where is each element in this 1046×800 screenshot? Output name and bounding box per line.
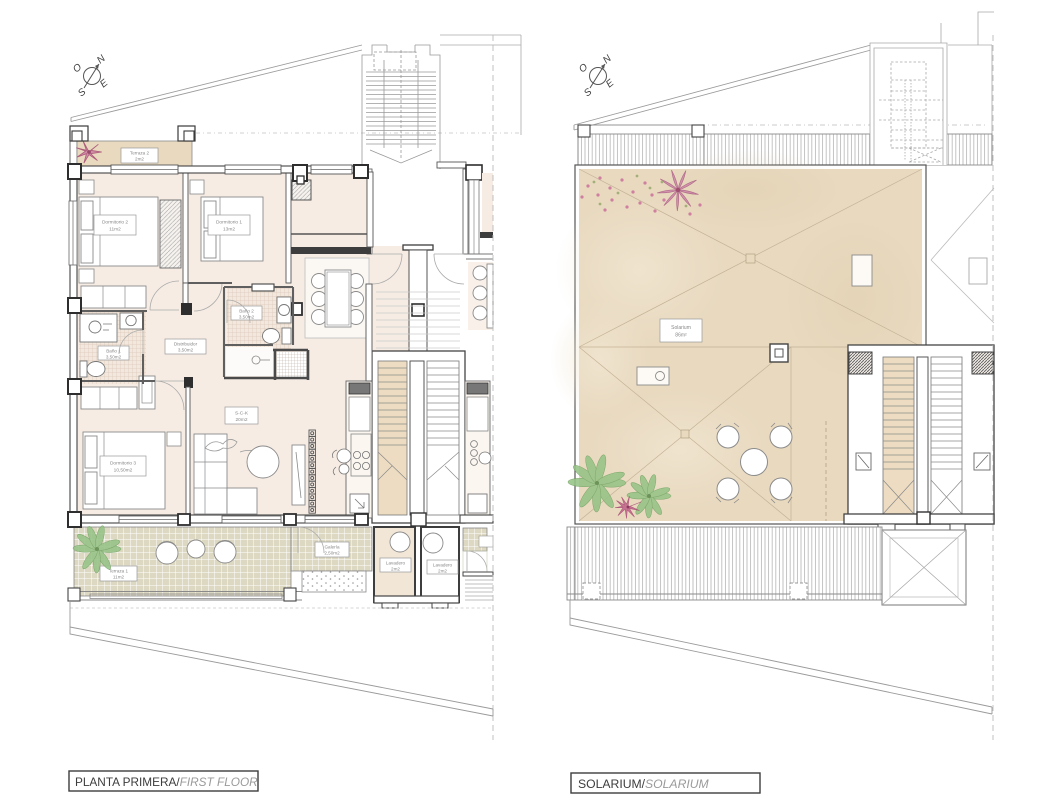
svg-text:Lavadero: Lavadero (386, 561, 406, 566)
svg-text:11m2: 11m2 (113, 575, 125, 580)
svg-text:11m2: 11m2 (109, 227, 121, 233)
svg-text:Terraza 1: Terraza 1 (109, 569, 129, 574)
svg-text:10,50m2: 10,50m2 (114, 468, 133, 474)
svg-text:86m²: 86m² (675, 333, 687, 339)
svg-text:SOLARIUM/SOLARIUM: SOLARIUM/SOLARIUM (578, 777, 710, 791)
svg-text:S-C-K: S-C-K (235, 411, 249, 417)
svg-text:2,50m2: 2,50m2 (324, 551, 340, 556)
svg-text:2m2: 2m2 (391, 567, 400, 572)
svg-text:3,50m2: 3,50m2 (106, 355, 122, 360)
svg-text:Lavadero: Lavadero (433, 563, 453, 568)
svg-text:Solarium: Solarium (671, 325, 691, 331)
svg-text:3,50m2: 3,50m2 (239, 315, 255, 320)
svg-text:Terraza 2: Terraza 2 (130, 151, 150, 156)
svg-text:Dormitorio 1: Dormitorio 1 (216, 220, 242, 226)
svg-text:13m2: 13m2 (223, 227, 235, 233)
svg-text:Dormitorio 3: Dormitorio 3 (110, 461, 136, 467)
svg-text:Distribuidor: Distribuidor (174, 342, 198, 347)
svg-text:2m2: 2m2 (438, 569, 447, 574)
svg-text:Dormitorio 2: Dormitorio 2 (102, 220, 128, 226)
svg-text:PLANTA PRIMERA/FIRST FLOOR: PLANTA PRIMERA/FIRST FLOOR (75, 775, 258, 789)
svg-text:2m2: 2m2 (135, 157, 144, 162)
svg-text:20m2: 20m2 (236, 417, 248, 423)
svg-text:Galería: Galería (324, 545, 340, 550)
svg-text:3,50m2: 3,50m2 (178, 348, 194, 353)
